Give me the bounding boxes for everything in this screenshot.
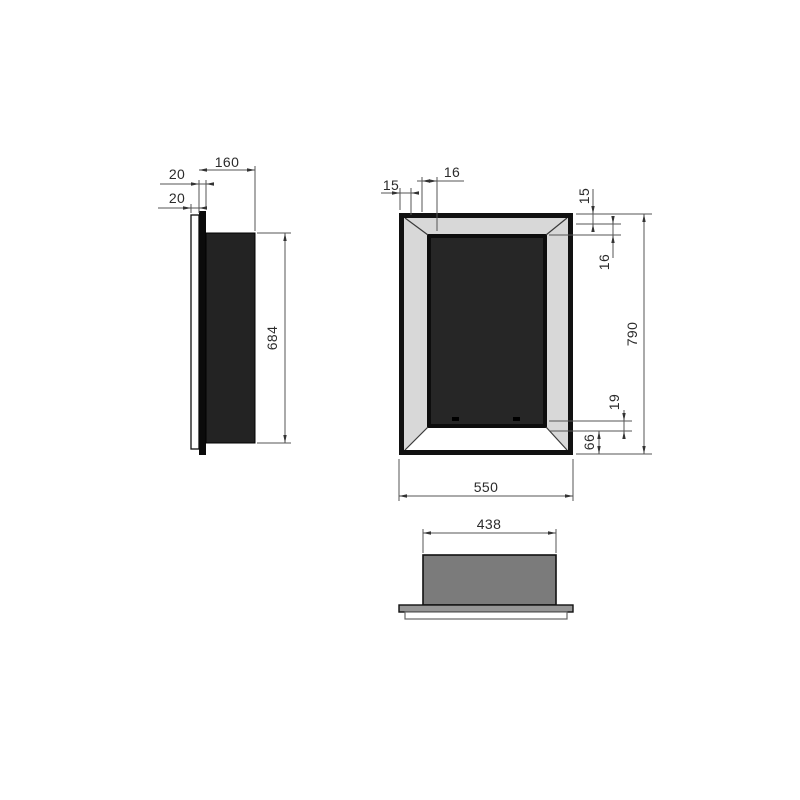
arrow-550-right xyxy=(565,494,573,497)
arrow-438-left xyxy=(423,531,431,534)
dim-label-frame-top-left-15: 15 xyxy=(383,178,399,192)
dim-label-bottom-inset-19: 19 xyxy=(607,394,621,410)
arrow-66-top xyxy=(597,431,600,439)
arrow-15L-right xyxy=(411,191,419,194)
dim-label-overall-height-790: 790 xyxy=(625,322,639,347)
side-view-body xyxy=(206,233,255,443)
arrow-160-right xyxy=(247,168,255,171)
side-view-front-flange xyxy=(199,211,206,455)
arrow-15R-bottom xyxy=(591,224,594,232)
front-view-burner-tick-left xyxy=(452,417,459,421)
dim-label-bottom-band-66: 66 xyxy=(582,434,596,450)
arrow-790-bottom xyxy=(642,446,645,454)
dim-label-plate-20: 20 xyxy=(169,191,185,205)
bottom-view-body xyxy=(423,555,556,605)
arrow-20a-right xyxy=(206,182,214,185)
arrow-20b-right xyxy=(199,206,207,209)
arrow-550-left xyxy=(399,494,407,497)
dim-label-bevel-right-16: 16 xyxy=(597,254,611,270)
arrow-16L-right xyxy=(429,179,437,182)
arrow-16R-bottom xyxy=(611,235,614,243)
front-view-bottom-floor xyxy=(405,427,567,450)
drawing-linework xyxy=(0,0,800,800)
side-view xyxy=(191,211,255,455)
dim-label-flange-20: 20 xyxy=(169,167,185,181)
arrow-684-bottom xyxy=(283,435,286,443)
dim-label-depth-160: 160 xyxy=(215,155,240,169)
dim-label-overall-width-550: 550 xyxy=(474,480,499,494)
arrow-19-bottom xyxy=(622,431,625,439)
dim-label-body-width-438: 438 xyxy=(477,517,502,531)
front-view-burner-tick-right xyxy=(513,417,520,421)
dim-label-body-height-684: 684 xyxy=(265,326,279,351)
side-view-wall-plate xyxy=(191,215,199,449)
technical-drawing-canvas: 160 20 20 684 15 16 15 16 790 19 66 550 … xyxy=(0,0,800,800)
arrow-16R-top xyxy=(611,216,614,224)
arrow-684-top xyxy=(283,233,286,241)
arrow-20a-left xyxy=(191,182,199,185)
bottom-view-dimension-lines xyxy=(423,529,556,553)
arrow-15R-top xyxy=(591,206,594,214)
dim-label-bevel-top-left-16: 16 xyxy=(444,165,460,179)
bottom-view-flange xyxy=(405,612,567,619)
bottom-view xyxy=(399,555,573,619)
dim-label-frame-right-15: 15 xyxy=(577,188,591,204)
arrow-66-bottom xyxy=(597,446,600,454)
front-view xyxy=(402,216,571,453)
bottom-view-wall-plate xyxy=(399,605,573,612)
arrow-19-top xyxy=(622,413,625,421)
front-view-opening xyxy=(429,236,545,426)
arrow-16L-left xyxy=(422,179,430,182)
arrow-790-top xyxy=(642,214,645,222)
arrow-438-right xyxy=(548,531,556,534)
arrow-160-left xyxy=(199,168,207,171)
arrow-20b-left xyxy=(183,206,191,209)
